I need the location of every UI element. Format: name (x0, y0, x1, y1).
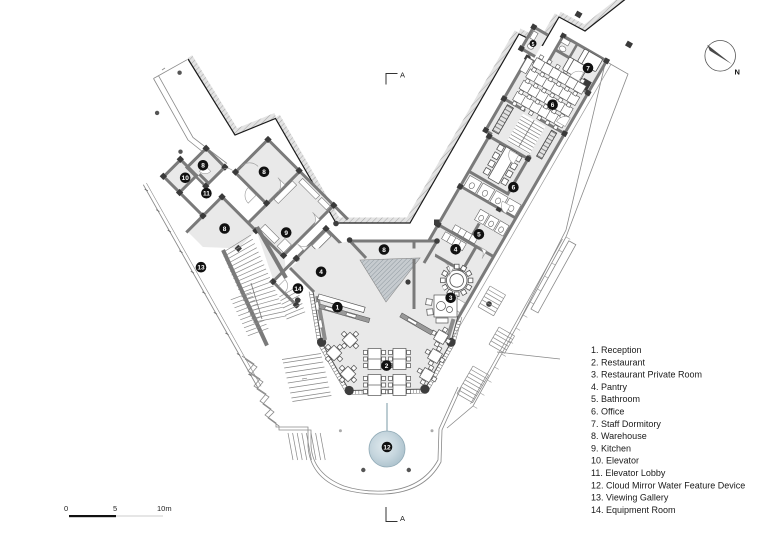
svg-text:13. Viewing Gallery: 13. Viewing Gallery (591, 493, 669, 503)
svg-text:14. Equipment Room: 14. Equipment Room (591, 505, 676, 515)
svg-text:6. Office: 6. Office (591, 407, 624, 417)
svg-text:9: 9 (284, 230, 288, 237)
svg-text:14: 14 (294, 286, 302, 293)
svg-text:10m: 10m (157, 504, 172, 513)
svg-text:3: 3 (449, 295, 453, 302)
svg-text:8: 8 (382, 247, 386, 254)
svg-text:A: A (400, 71, 405, 80)
svg-text:8: 8 (201, 163, 205, 170)
svg-text:8: 8 (223, 226, 227, 233)
svg-text:7. Staff Dormitory: 7. Staff Dormitory (591, 419, 661, 429)
svg-text:9. Kitchen: 9. Kitchen (591, 443, 631, 453)
svg-text:5: 5 (113, 504, 117, 513)
svg-text:10: 10 (182, 175, 190, 182)
svg-text:0: 0 (64, 504, 68, 513)
svg-text:11: 11 (203, 191, 210, 198)
svg-text:1: 1 (336, 305, 340, 312)
svg-text:5: 5 (477, 232, 481, 239)
svg-text:2: 2 (385, 363, 389, 370)
svg-text:2. Restaurant: 2. Restaurant (591, 357, 646, 367)
svg-text:A: A (400, 514, 405, 523)
svg-text:4: 4 (319, 269, 323, 276)
svg-text:11. Elevator Lobby: 11. Elevator Lobby (591, 468, 666, 478)
svg-text:13: 13 (197, 265, 205, 272)
svg-text:7: 7 (586, 65, 590, 72)
svg-text:N: N (735, 68, 740, 77)
svg-text:12: 12 (383, 444, 391, 451)
svg-text:3. Restaurant Private Room: 3. Restaurant Private Room (591, 370, 702, 380)
svg-text:8: 8 (262, 169, 266, 176)
svg-text:4. Pantry: 4. Pantry (591, 382, 628, 392)
svg-text:8. Warehouse: 8. Warehouse (591, 431, 647, 441)
svg-text:10. Elevator: 10. Elevator (591, 456, 639, 466)
svg-text:6: 6 (551, 102, 555, 109)
svg-text:5. Bathroom: 5. Bathroom (591, 394, 640, 404)
svg-text:6: 6 (512, 185, 516, 192)
svg-text:4: 4 (454, 247, 458, 254)
svg-text:1. Reception: 1. Reception (591, 345, 642, 355)
svg-text:5: 5 (532, 42, 535, 48)
svg-text:12. Cloud Mirror Water Feature: 12. Cloud Mirror Water Feature Device (591, 480, 745, 490)
